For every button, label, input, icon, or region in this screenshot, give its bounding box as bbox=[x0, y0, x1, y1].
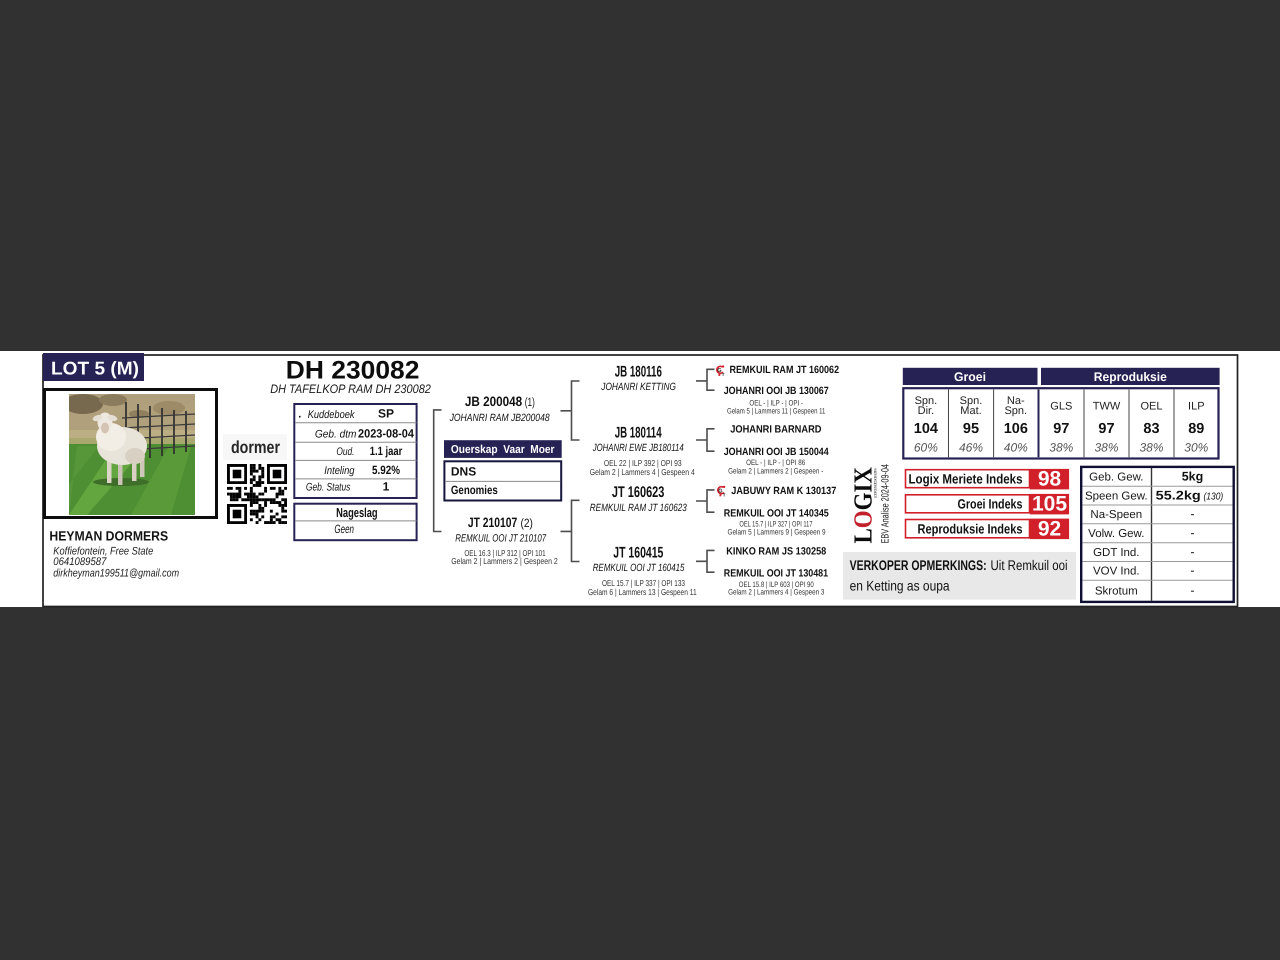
svg-text:(2): (2) bbox=[521, 516, 533, 530]
svg-text:T: T bbox=[723, 493, 726, 498]
svg-text:Gelam 2 | Lammers 2 | Gespeen: Gelam 2 | Lammers 2 | Gespeen - bbox=[728, 467, 823, 476]
svg-text:-: - bbox=[1190, 526, 1194, 540]
svg-text:Volw. Gew.: Volw. Gew. bbox=[1088, 528, 1144, 540]
svg-text:Geb. Status: Geb. Status bbox=[306, 482, 351, 494]
svg-text:Spn.: Spn. bbox=[1004, 405, 1027, 417]
svg-text:DNS: DNS bbox=[451, 465, 476, 479]
svg-text:30%: 30% bbox=[1184, 441, 1208, 455]
svg-text:Geb. Gew.: Geb. Gew. bbox=[1089, 472, 1143, 484]
svg-text:REMKUIL OOI JT 210107: REMKUIL OOI JT 210107 bbox=[455, 533, 547, 545]
svg-text:REMKUIL RAM JT 160623: REMKUIL RAM JT 160623 bbox=[590, 502, 687, 514]
svg-text:46%: 46% bbox=[959, 441, 983, 455]
svg-text:.: . bbox=[298, 408, 301, 420]
svg-text:JOHANRI OOI JB 130067: JOHANRI OOI JB 130067 bbox=[724, 385, 829, 397]
svg-text:-: - bbox=[1190, 507, 1194, 521]
svg-text:38%: 38% bbox=[1049, 441, 1073, 455]
svg-text:TWW: TWW bbox=[1093, 401, 1121, 413]
svg-text:104: 104 bbox=[914, 421, 938, 437]
svg-text:LOT 5 (M): LOT 5 (M) bbox=[51, 358, 139, 379]
svg-text:JOHANRI EWE JB180114: JOHANRI EWE JB180114 bbox=[592, 442, 684, 454]
svg-text:REMKUIL OOI JT 130481: REMKUIL OOI JT 130481 bbox=[724, 567, 828, 579]
svg-text:(130): (130) bbox=[1204, 491, 1224, 502]
svg-text:55.2kg: 55.2kg bbox=[1156, 488, 1201, 502]
svg-text:Groei: Groei bbox=[954, 370, 986, 384]
svg-text:98: 98 bbox=[1038, 468, 1062, 491]
svg-text:5.92%: 5.92% bbox=[372, 463, 400, 477]
svg-text:Gelam 2 | Lammers 4 | Gespeen: Gelam 2 | Lammers 4 | Gespeen 4 bbox=[590, 467, 695, 477]
svg-text:SP: SP bbox=[378, 406, 394, 420]
svg-text:GLS: GLS bbox=[1050, 401, 1072, 413]
svg-text:Reproduksie: Reproduksie bbox=[1094, 370, 1167, 384]
svg-text:0641089587: 0641089587 bbox=[53, 556, 107, 568]
svg-text:Gelam 2 | Lammers 2 | Gespeen: Gelam 2 | Lammers 2 | Gespeen 2 bbox=[451, 556, 558, 566]
svg-text:105: 105 bbox=[1032, 493, 1067, 516]
svg-text:KINKO RAM JS 130258: KINKO RAM JS 130258 bbox=[726, 545, 826, 557]
svg-text:60%: 60% bbox=[914, 441, 938, 455]
svg-text:Genomies: Genomies bbox=[451, 483, 498, 497]
svg-text:REMKUIL OOI JT 140345: REMKUIL OOI JT 140345 bbox=[724, 507, 829, 519]
svg-text:(1): (1) bbox=[525, 395, 535, 409]
svg-text:5kg: 5kg bbox=[1182, 470, 1204, 484]
svg-text:DH 230082: DH 230082 bbox=[286, 357, 420, 385]
svg-text:ILP: ILP bbox=[1188, 401, 1205, 413]
svg-text:Kuddeboek: Kuddeboek bbox=[308, 409, 355, 421]
svg-text:106: 106 bbox=[1004, 421, 1028, 437]
svg-text:T: T bbox=[722, 372, 725, 377]
svg-text:GDT Ind.: GDT Ind. bbox=[1093, 547, 1139, 559]
svg-text:83: 83 bbox=[1143, 421, 1159, 437]
svg-text:2023-08-04: 2023-08-04 bbox=[358, 426, 414, 440]
svg-text:Gelam 2 | Lammers 4 | Gespeen: Gelam 2 | Lammers 4 | Gespeen 3 bbox=[728, 587, 824, 596]
svg-text:JOHANRI RAM JB200048: JOHANRI RAM JB200048 bbox=[449, 412, 550, 424]
svg-text:Geb. dtm: Geb. dtm bbox=[315, 428, 357, 440]
svg-text:1: 1 bbox=[383, 480, 390, 494]
svg-text:Nageslag: Nageslag bbox=[336, 505, 378, 520]
svg-text:JT 160415: JT 160415 bbox=[613, 544, 663, 561]
svg-text:Uit Remkuil ooi: Uit Remkuil ooi bbox=[991, 557, 1068, 573]
svg-text:dirkheyman199511@gmail.com: dirkheyman199511@gmail.com bbox=[53, 568, 179, 580]
svg-text:Ouerskap Vaar Moer: Ouerskap Vaar Moer bbox=[451, 444, 555, 456]
svg-text:38%: 38% bbox=[1139, 441, 1163, 455]
svg-text:Gelam 5 | Lammers 11 | Gespeen: Gelam 5 | Lammers 11 | Gespeen 11 bbox=[727, 407, 825, 416]
svg-text:JOHANRI KETTING: JOHANRI KETTING bbox=[601, 381, 676, 393]
svg-text:VERKOPER OPMERKINGS:: VERKOPER OPMERKINGS: bbox=[850, 557, 987, 573]
svg-text:97: 97 bbox=[1053, 421, 1069, 437]
svg-text:dormer: dormer bbox=[231, 437, 280, 457]
svg-text:Speen Gew.: Speen Gew. bbox=[1085, 490, 1148, 502]
svg-text:Dir.: Dir. bbox=[918, 405, 935, 417]
svg-text:DH TAFELKOP RAM DH 230082: DH TAFELKOP RAM DH 230082 bbox=[270, 382, 431, 396]
svg-text:Gelam 6 | Lammers 13 | Gespeen: Gelam 6 | Lammers 13 | Gespeen 11 bbox=[588, 587, 697, 597]
svg-text:95: 95 bbox=[963, 421, 979, 437]
svg-text:38%: 38% bbox=[1094, 441, 1118, 455]
svg-text:-: - bbox=[1190, 545, 1194, 559]
svg-text:Skrotum: Skrotum bbox=[1095, 586, 1138, 598]
svg-text:REMKUIL RAM JT 160062: REMKUIL RAM JT 160062 bbox=[730, 364, 840, 376]
svg-text:JOHANRI OOI JB 150044: JOHANRI OOI JB 150044 bbox=[724, 446, 829, 458]
svg-text:Reproduksie Indeks: Reproduksie Indeks bbox=[918, 521, 1023, 536]
svg-text:Na-Speen: Na-Speen bbox=[1090, 509, 1142, 521]
svg-text:-: - bbox=[1190, 584, 1194, 598]
svg-text:HEYMAN DORMERS: HEYMAN DORMERS bbox=[49, 529, 168, 544]
svg-text:JB 180116: JB 180116 bbox=[615, 364, 662, 381]
svg-text:JT 210107: JT 210107 bbox=[468, 515, 517, 530]
svg-text:40%: 40% bbox=[1004, 441, 1028, 455]
svg-text:89: 89 bbox=[1188, 421, 1204, 437]
svg-text:JT 160623: JT 160623 bbox=[612, 484, 665, 501]
svg-text:JB 200048: JB 200048 bbox=[465, 394, 523, 409]
svg-text:Oud.: Oud. bbox=[336, 446, 354, 458]
svg-text:Logix Meriete Indeks: Logix Meriete Indeks bbox=[909, 472, 1023, 487]
svg-text:REMKUIL OOI JT 160415: REMKUIL OOI JT 160415 bbox=[593, 562, 685, 574]
svg-text:97: 97 bbox=[1098, 421, 1114, 437]
svg-text:EBV Analise 2024-09-04: EBV Analise 2024-09-04 bbox=[880, 464, 892, 544]
svg-text:-: - bbox=[1190, 564, 1194, 578]
svg-text:OEL: OEL bbox=[1140, 401, 1162, 413]
svg-text:Groei Indeks: Groei Indeks bbox=[958, 497, 1023, 512]
svg-text:en Ketting as oupa: en Ketting as oupa bbox=[850, 578, 950, 594]
svg-text:1.1 jaar: 1.1 jaar bbox=[370, 444, 403, 458]
svg-text:92: 92 bbox=[1038, 517, 1061, 540]
svg-text:VOV Ind.: VOV Ind. bbox=[1093, 566, 1140, 578]
svg-text:Inteling: Inteling bbox=[324, 465, 355, 477]
svg-text:JOHANRI BARNARD: JOHANRI BARNARD bbox=[730, 424, 822, 436]
svg-text:Mat.: Mat. bbox=[960, 405, 981, 417]
svg-text:JB 180114: JB 180114 bbox=[615, 424, 662, 441]
svg-text:JABUWY RAM K 130137: JABUWY RAM K 130137 bbox=[731, 485, 836, 497]
svg-text:Gelam 5 | Lammers 9 | Gespeen: Gelam 5 | Lammers 9 | Gespeen 9 bbox=[728, 527, 826, 536]
svg-text:Geen: Geen bbox=[334, 522, 354, 536]
svg-text:LOGIX GENETICS • GENETIKA: LOGIX GENETICS • GENETIKA bbox=[874, 467, 878, 498]
